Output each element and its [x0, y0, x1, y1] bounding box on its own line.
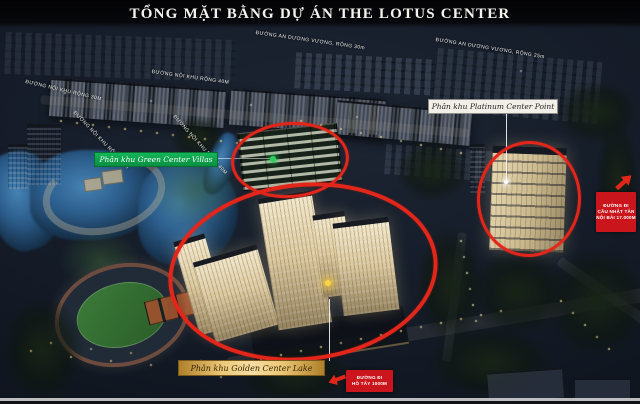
title-bar: TỔNG MẶT BẰNG DỰ ÁN THE LOTUS CENTER: [0, 0, 640, 28]
clubhouse-large: [101, 169, 124, 186]
yellow-marker-dot: [325, 280, 331, 286]
street-label: ĐƯỜNG AN DƯƠNG VƯƠNG, RỘNG 30m: [255, 30, 365, 51]
site-plan-scene: ĐƯỜNG NỘI KHU RỘNG 30M ĐƯỜNG AN DƯƠNG VƯ…: [0, 0, 640, 404]
direction-box-nhat-tan: ĐƯỜNG ĐI CẦU NHẬT TÂN NỘI BÀI 17.000M: [596, 192, 636, 232]
tree-cluster: [555, 80, 640, 145]
clubhouse-small: [83, 177, 103, 192]
tree-cluster: [0, 295, 85, 404]
neighborhood-top-center: [294, 52, 436, 95]
west-tower-large: [27, 124, 61, 185]
direction-line: HỒ TÂY 1000M: [352, 381, 387, 387]
zone-banner-platinum-center-point: Phân khu Platinum Center Point: [428, 99, 558, 114]
zone-banner-green-center-villas: Phân khu Green Center Villas: [94, 152, 218, 167]
west-tower-small: [8, 144, 28, 189]
platinum-marker-dot: [504, 180, 508, 184]
green-marker-dot: [270, 156, 276, 162]
direction-box-ho-tay: ĐƯỜNG ĐI HỒ TÂY 1000M: [346, 370, 393, 392]
tree-cluster: [395, 138, 470, 203]
neighborhood-top-left: [4, 32, 235, 82]
page-title: TỔNG MẶT BẰNG DỰ ÁN THE LOTUS CENTER: [130, 6, 511, 23]
zone-banner-golden-center-lake: Phân khu Golden Center Lake: [178, 360, 325, 376]
direction-line: NỘI BÀI 17.000M: [596, 215, 636, 221]
tree-cluster: [545, 245, 640, 360]
